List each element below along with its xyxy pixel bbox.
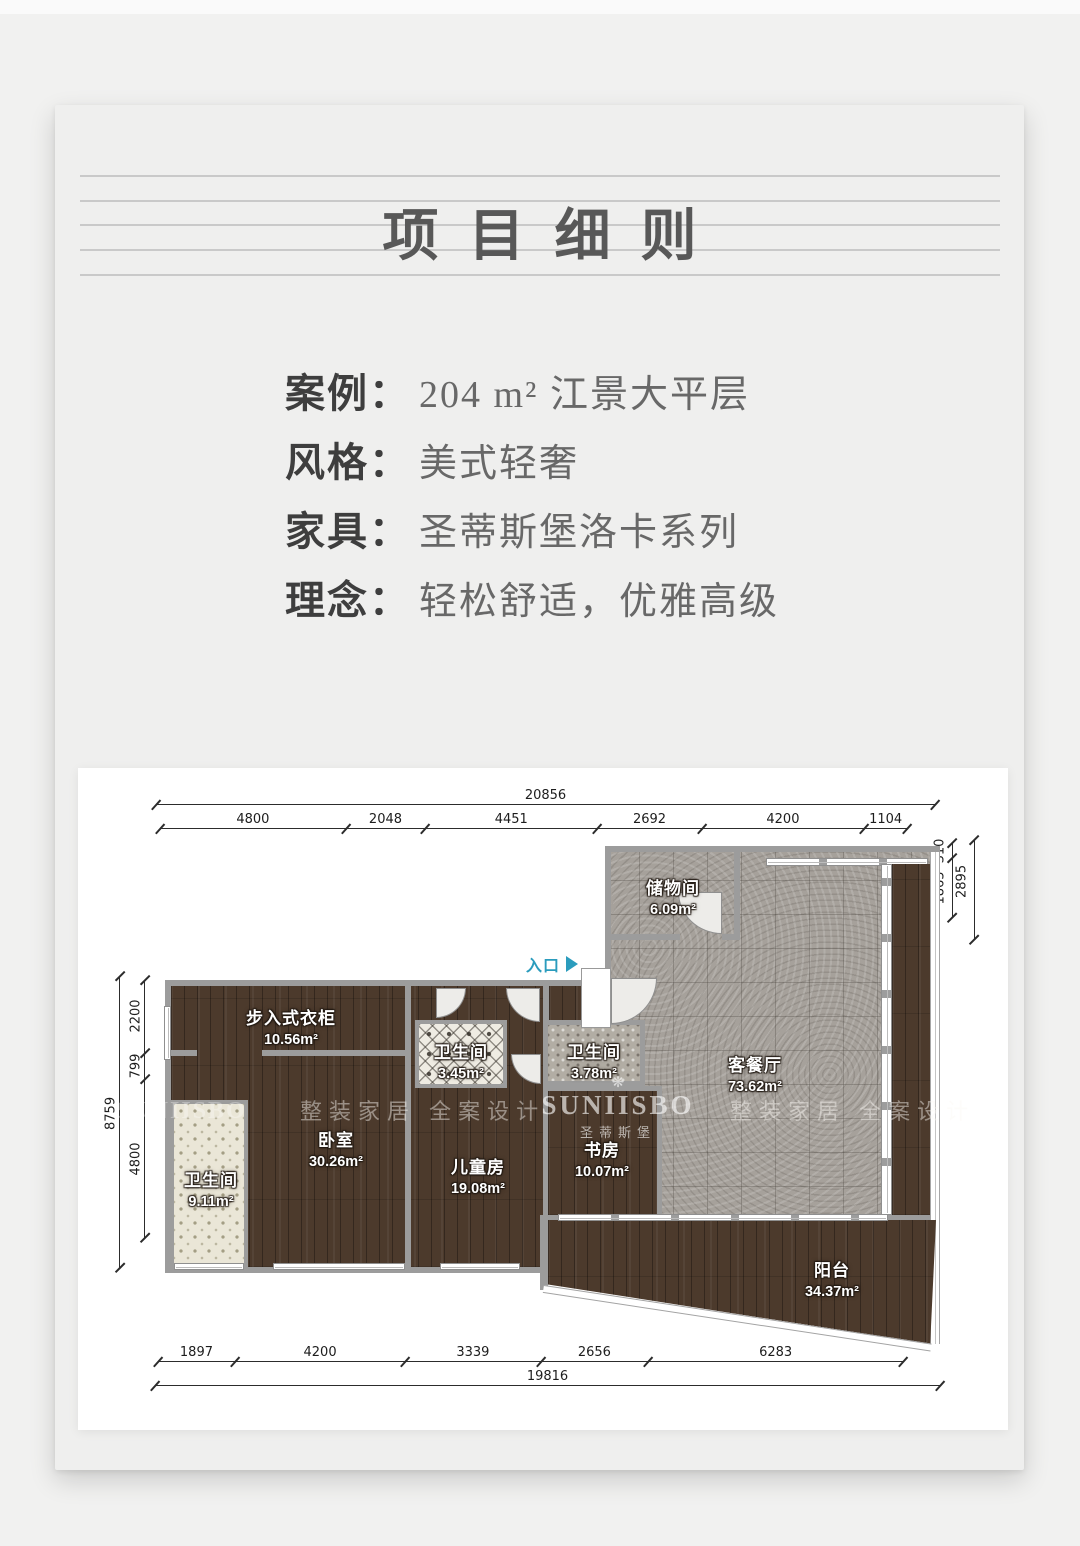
detail-value: 204 m² 江景大平层 <box>419 363 750 418</box>
dim-value: 2048 <box>346 812 425 827</box>
dim-tick <box>140 975 150 985</box>
dim-segment: 4200 <box>702 813 865 829</box>
wall <box>605 852 611 970</box>
room-label-storage: 储物间 6.09m² <box>646 874 700 918</box>
dim-value: 3339 <box>405 1345 540 1360</box>
dim-total-bottom: 19816 <box>155 1370 940 1386</box>
dim-top-segments: 480020484451269242001104 <box>160 813 907 829</box>
page-title: 项目细则 <box>55 191 1024 272</box>
dim-total-top: 20856 <box>156 789 935 805</box>
content-card: 项目细则 案例： 204 m² 江景大平层 风格： 美式轻奢 家具： 圣蒂斯堡洛… <box>55 105 1024 1470</box>
floor-bay-strip <box>892 864 930 1215</box>
brand-name: SUNIISBO <box>541 1090 694 1120</box>
floorplan-panel: 20856 480020484451269242001104 189742003… <box>78 768 1008 1430</box>
detail-row-style: 风格： 美式轻奢 <box>285 430 779 480</box>
dim-segment: 2200 <box>129 980 145 1053</box>
dim-tick <box>947 838 957 848</box>
detail-row-concept: 理念： 轻松舒适，优雅高级 <box>285 568 779 618</box>
entry-nook <box>581 968 611 1028</box>
detail-row-furniture: 家具： 圣蒂斯堡洛卡系列 <box>285 499 779 549</box>
wall <box>734 852 740 940</box>
detail-label: 家具： <box>285 499 411 557</box>
watermark-brand: ❋ SUNIISBO 圣蒂斯堡 <box>541 1076 694 1141</box>
window <box>558 1214 888 1221</box>
detail-row-case: 案例： 204 m² 江景大平层 <box>285 361 779 411</box>
dim-value: 4800 <box>160 812 346 827</box>
detail-label: 风格： <box>285 430 411 488</box>
dim-segment: 2048 <box>346 813 425 829</box>
dim-bottom-segments: 18974200333926566283 <box>158 1346 903 1362</box>
detail-value: 美式轻奢 <box>419 432 579 487</box>
dim-segment: 799 <box>129 1053 145 1079</box>
project-details: 案例： 204 m² 江景大平层 风格： 美式轻奢 家具： 圣蒂斯堡洛卡系列 理… <box>285 361 779 637</box>
watermark-slogan-right: 整装家居 全案设计 <box>730 1094 975 1126</box>
window <box>164 1006 171 1060</box>
dim-value: 2200 <box>129 1000 144 1033</box>
dim-segment: 1897 <box>158 1346 235 1362</box>
wall <box>540 1215 548 1290</box>
dim-value: 1104 <box>864 812 907 827</box>
entry-label: 入口 <box>526 952 560 976</box>
dim-value: 799 <box>129 1054 144 1079</box>
dim-segment: 4451 <box>425 813 597 829</box>
dim-value: 4800 <box>129 1142 144 1175</box>
window <box>273 1263 405 1270</box>
dim-segment: 1104 <box>864 813 907 829</box>
page-top-edge <box>0 0 1080 14</box>
dim-value: 6283 <box>648 1345 903 1360</box>
dim-segment: 4800 <box>160 813 346 829</box>
detail-label: 理念： <box>285 568 411 626</box>
room-label-balcony: 阳台 34.37m² <box>805 1256 859 1300</box>
window <box>174 1263 244 1270</box>
dim-value: 1897 <box>158 1345 235 1360</box>
dim-value: 19816 <box>155 1369 940 1384</box>
watermark-slogan-left: 整装家居 全案设计 <box>300 1094 545 1126</box>
dim-value: 4451 <box>425 812 597 827</box>
dim-tick <box>115 1263 125 1273</box>
dim-value: 20856 <box>156 788 935 803</box>
wall <box>722 934 740 940</box>
room-label-bedroom: 卧室 30.26m² <box>309 1126 363 1170</box>
dim-value: 2895 <box>955 882 970 898</box>
dim-value: 4200 <box>235 1345 405 1360</box>
floor-balcony <box>548 1220 936 1344</box>
room-label-bath-left: 卫生间 9.11m² <box>184 1166 238 1210</box>
entry-arrow-icon <box>566 956 578 972</box>
detail-value: 圣蒂斯堡洛卡系列 <box>419 501 739 556</box>
detail-value: 轻松舒适，优雅高级 <box>419 570 779 625</box>
room-label-bath-mid: 卫生间 3.78m² <box>567 1038 621 1082</box>
entry-marker: 入口 <box>526 952 578 976</box>
divider-line <box>80 274 1000 276</box>
dim-tick <box>115 971 125 981</box>
room-label-living: 客餐厅 73.62m² <box>728 1051 782 1095</box>
watermark-brand-partial: SUNIISBO <box>116 1098 244 1125</box>
dim-segment: 6283 <box>648 1346 903 1362</box>
dim-segment: 2692 <box>597 813 701 829</box>
dim-segment: 3339 <box>405 1346 540 1362</box>
wall <box>605 934 680 940</box>
room-label-study: 书房 10.07m² <box>575 1136 629 1180</box>
dim-segment: 2656 <box>541 1346 649 1362</box>
dim-value: 4200 <box>702 812 865 827</box>
window <box>881 864 892 1215</box>
room-label-kids: 儿童房 19.08m² <box>451 1153 505 1197</box>
room-label-bath-small: 卫生间 3.45m² <box>434 1038 488 1082</box>
dim-segment: 4200 <box>235 1346 405 1362</box>
dim-value: 2656 <box>541 1345 649 1360</box>
wall <box>605 846 940 852</box>
divider-line <box>80 175 1000 177</box>
room-label-closet: 步入式衣柜 10.56m² <box>246 1004 336 1048</box>
wall <box>262 1050 408 1056</box>
wall <box>405 980 411 1273</box>
dim-tick <box>969 835 979 845</box>
dim-value: 2692 <box>597 812 701 827</box>
dim-total-right: 2895 <box>974 840 990 940</box>
dim-tick <box>969 935 979 945</box>
window <box>440 1263 520 1270</box>
detail-label: 案例： <box>285 361 411 419</box>
